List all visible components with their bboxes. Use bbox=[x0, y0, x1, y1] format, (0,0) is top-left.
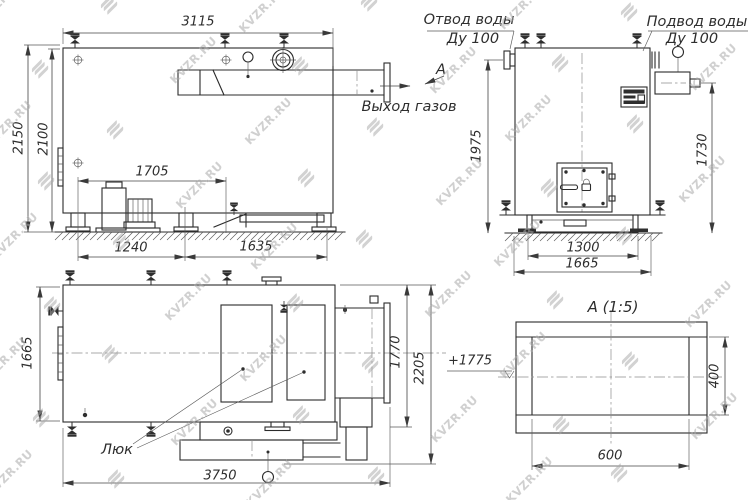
view-a-letter: А bbox=[436, 62, 446, 78]
dim-overall-width: 1665 bbox=[565, 257, 598, 272]
dim-detail-width: 600 bbox=[598, 449, 623, 464]
dim-top-width: 1665 bbox=[21, 336, 36, 369]
dim-fan-length: 1705 bbox=[135, 165, 168, 180]
water-inlet-label: Подвод воды bbox=[647, 14, 748, 30]
water-inlet-dn: Ду 100 bbox=[666, 31, 718, 47]
technical-drawing: 3115 2150 2100 1705 1240 1635 Выход газо… bbox=[0, 0, 750, 500]
dim-rear-segment: 1635 bbox=[239, 240, 272, 255]
drawing-labels: 3115 2150 2100 1705 1240 1635 Выход газо… bbox=[0, 0, 750, 500]
dim-side-width: 3115 bbox=[181, 15, 214, 30]
dim-front-segment: 1240 bbox=[114, 241, 147, 256]
gas-outlet-label: Выход газов bbox=[361, 99, 456, 115]
dim-outlet-height: 1975 bbox=[470, 129, 485, 162]
elevation-value: +1775 bbox=[448, 354, 492, 369]
hatch-label: Люк bbox=[101, 442, 133, 458]
water-outlet-label: Отвод воды bbox=[424, 12, 515, 28]
dim-side-height-shell: 2100 bbox=[37, 122, 52, 155]
water-outlet-dn: Ду 100 bbox=[447, 31, 499, 47]
dim-2205: 2205 bbox=[413, 351, 428, 384]
dim-base-width: 1300 bbox=[566, 241, 599, 256]
dim-inlet-height: 1730 bbox=[696, 133, 711, 166]
dim-1770: 1770 bbox=[389, 335, 404, 368]
detail-title: А (1:5) bbox=[588, 298, 639, 316]
dim-detail-height: 400 bbox=[708, 364, 723, 389]
dim-side-height-total: 2150 bbox=[12, 121, 27, 154]
dim-overall-length: 3750 bbox=[203, 469, 236, 484]
